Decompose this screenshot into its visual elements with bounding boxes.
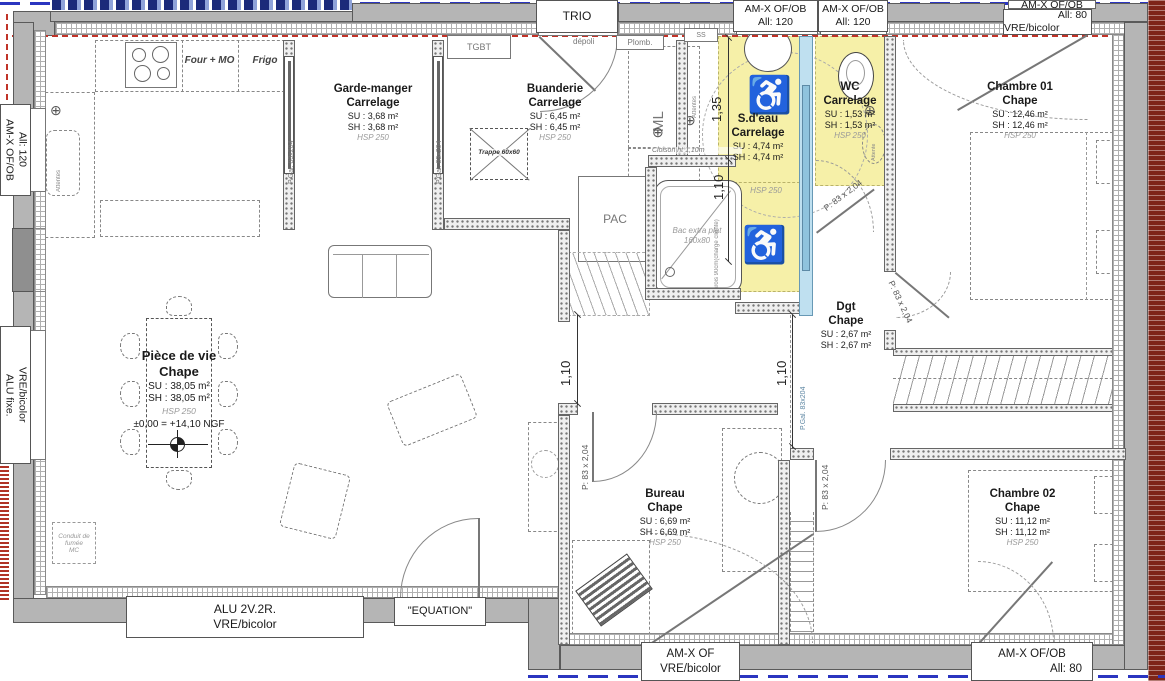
position-marker-icon: ⊕	[652, 124, 664, 141]
heat-pump-box: PAC	[578, 176, 652, 262]
wall-top-insulation	[55, 22, 538, 35]
wardrobe-wall	[893, 404, 1128, 412]
window-label-chambre01: All: 80VRE/bicolor	[1003, 9, 1092, 35]
room-label-chambre01: Chambre 01 Chape SU : 12,46 m² SH : 12,4…	[950, 80, 1090, 141]
wheelchair-icon: ♿	[747, 74, 792, 116]
drain-icon	[665, 267, 675, 277]
oven-label: Four + MO	[181, 55, 238, 66]
chair-icon	[218, 429, 238, 455]
window-label-equation: "EQUATION"	[394, 597, 486, 626]
dim-line	[792, 315, 793, 448]
room-label-dgt: Dgt Chape SU : 2,67 m² SH : 2,67 m²	[800, 300, 892, 351]
trio-text: TRIO	[563, 9, 592, 24]
shutter-box	[887, 3, 1005, 22]
wall-bureau-top	[652, 403, 778, 415]
window-label-living-left: ALU fixe.VRE/bicolor	[0, 326, 31, 464]
wardrobe-chambre01	[893, 356, 1128, 404]
kitchen-island	[100, 200, 260, 237]
wall-bureau-left	[558, 415, 570, 645]
wall-right-insulation	[1112, 34, 1124, 645]
stove-icon	[125, 42, 177, 88]
window-label-cut: AM-X OF/OB	[1008, 0, 1096, 9]
bed-line	[1086, 132, 1087, 300]
wall-chambre02-top	[890, 448, 1126, 460]
position-marker-icon: ⊕	[50, 102, 62, 119]
window-label-wc: AM-X OF/OBAll: 120	[818, 0, 888, 32]
room-label-bureau: Bureau Chape SU : 6,69 m² SH : 6,69 m² H…	[600, 487, 730, 548]
burner-icon	[152, 46, 169, 63]
shower-wall-note: Parois 90cm(charge cliente)	[714, 202, 720, 294]
shower-label: Bac extra plat160x80	[662, 226, 732, 247]
equation-door-leaf	[478, 518, 480, 598]
level-symbol-line-v	[177, 430, 178, 458]
room-label-buanderie: Buanderie Carrelage SU : 6,45 m² SH : 6,…	[480, 82, 630, 143]
dim-110-a: 1,10	[711, 148, 726, 200]
wall-wc-chambre01	[884, 36, 896, 272]
shutter-box	[1090, 3, 1148, 22]
burner-icon	[157, 67, 170, 80]
sofa	[328, 245, 432, 298]
heat-pump-label: PAC	[603, 212, 627, 226]
ss-box: SS	[684, 28, 718, 42]
level-symbol-line	[148, 444, 208, 445]
tgbt-box: TGBT	[447, 35, 511, 59]
fixed-window-insulation	[34, 228, 46, 292]
dim-135: 1,35	[709, 70, 724, 122]
floor-plan: Four + MO Frigo Attentes Conduit de fumé…	[0, 0, 1165, 681]
room-label-wc: WC Carrelage SU : 1,53 m² SH : 1,53 m² H…	[810, 80, 890, 141]
wall-buanderie-right	[676, 40, 688, 156]
flue-label2: MC	[69, 547, 79, 554]
floor-transition-hatch	[563, 252, 650, 316]
dim-110-b: 1,10	[558, 338, 573, 386]
wall-chambre02-top-stub	[790, 448, 814, 460]
burner-icon	[132, 48, 146, 62]
fixed-window-panel	[12, 228, 34, 292]
door-label-p83-chambre02: P: 83 x 2,04	[820, 434, 830, 510]
level-label: ±0,00 = +14,10 NGF	[133, 419, 224, 432]
room-label-gardemanger: Garde-manger Carrelage SU : 3,68 m² SH :…	[300, 82, 446, 143]
room-label-chambre02: Chambre 02 Chape SU : 11,12 m² SH : 11,1…	[955, 487, 1090, 548]
wall-sdeau-bottom	[645, 288, 741, 300]
room-label-piecedevie: Pièce de vie Chape SU : 38,05 m² SH : 38…	[105, 348, 253, 432]
washer-label: ML	[650, 72, 667, 132]
chair-icon	[166, 470, 192, 490]
bureau-door-arc	[593, 412, 657, 482]
window-label-bureau: AM-X OFVRE/bicolor	[641, 642, 740, 681]
brick-cladding	[1148, 0, 1165, 681]
wardrobe-wall	[893, 348, 1128, 356]
window-label-trio: TRIO	[536, 0, 618, 33]
window-label-kitchen: AM-X OF/OBAll: 120	[0, 104, 31, 196]
dgt-open-boundary	[790, 315, 791, 448]
ss-label: SS	[696, 32, 705, 39]
wall-living-corner	[558, 230, 570, 322]
flue-label: Conduit de fumée	[53, 533, 95, 547]
chaise	[386, 373, 478, 447]
kitchen-sink	[46, 130, 80, 196]
door-label-pgal: P.Gal. 83x204	[288, 114, 295, 184]
wheelchair-icon: ♿	[742, 224, 787, 266]
equation-door-arc	[400, 518, 478, 598]
wall-right	[1124, 22, 1148, 670]
tgbt-label: TGBT	[467, 42, 491, 52]
dim-110-c: 1,10	[774, 338, 789, 386]
wall-bureau-top-stub	[558, 403, 578, 415]
attentes-label: Attentes	[56, 146, 62, 192]
flue-box: Conduit de fumée MC	[52, 522, 96, 564]
dim-line	[577, 315, 578, 405]
kitchen-counter-divider	[238, 40, 239, 92]
burner-icon	[134, 65, 151, 82]
door-label-p83-bureau: P: 83 x 2,04	[580, 420, 590, 490]
shutter-box	[618, 3, 736, 22]
wall-buanderie-bottom	[444, 218, 570, 230]
wardrobe-rail	[893, 378, 1128, 379]
fence-strip	[52, 0, 352, 10]
kitchen-counter-divider	[182, 40, 183, 92]
window-label-sdeau: AM-X OF/OBAll: 120	[733, 0, 818, 32]
door-label-pgal: P.Gal. 83x204	[436, 114, 443, 184]
shutter-box	[352, 3, 538, 22]
plomb-label: Plomb.	[628, 38, 653, 47]
armchair	[279, 462, 351, 540]
wall-shower-left	[645, 167, 657, 300]
door-label-pgal-blue: P.Gal. 83x204	[800, 342, 807, 430]
window-label-chambre02: AM-X OF/OB All: 80	[971, 642, 1093, 681]
sdeau-hsp-label: HSP 250	[738, 186, 794, 195]
chair-icon	[120, 429, 140, 455]
dim-line	[728, 38, 729, 262]
wall-jog	[528, 598, 560, 670]
trapdoor-label: Trappe 60x60	[471, 149, 527, 156]
window-label-living-bottom: ALU 2V.2R.VRE/bicolor	[126, 596, 364, 638]
chair-icon	[166, 296, 192, 316]
depoli-label: dépoli	[573, 37, 617, 46]
plomb-box: Plomb.	[616, 35, 664, 50]
sideboard-dish	[531, 450, 559, 478]
